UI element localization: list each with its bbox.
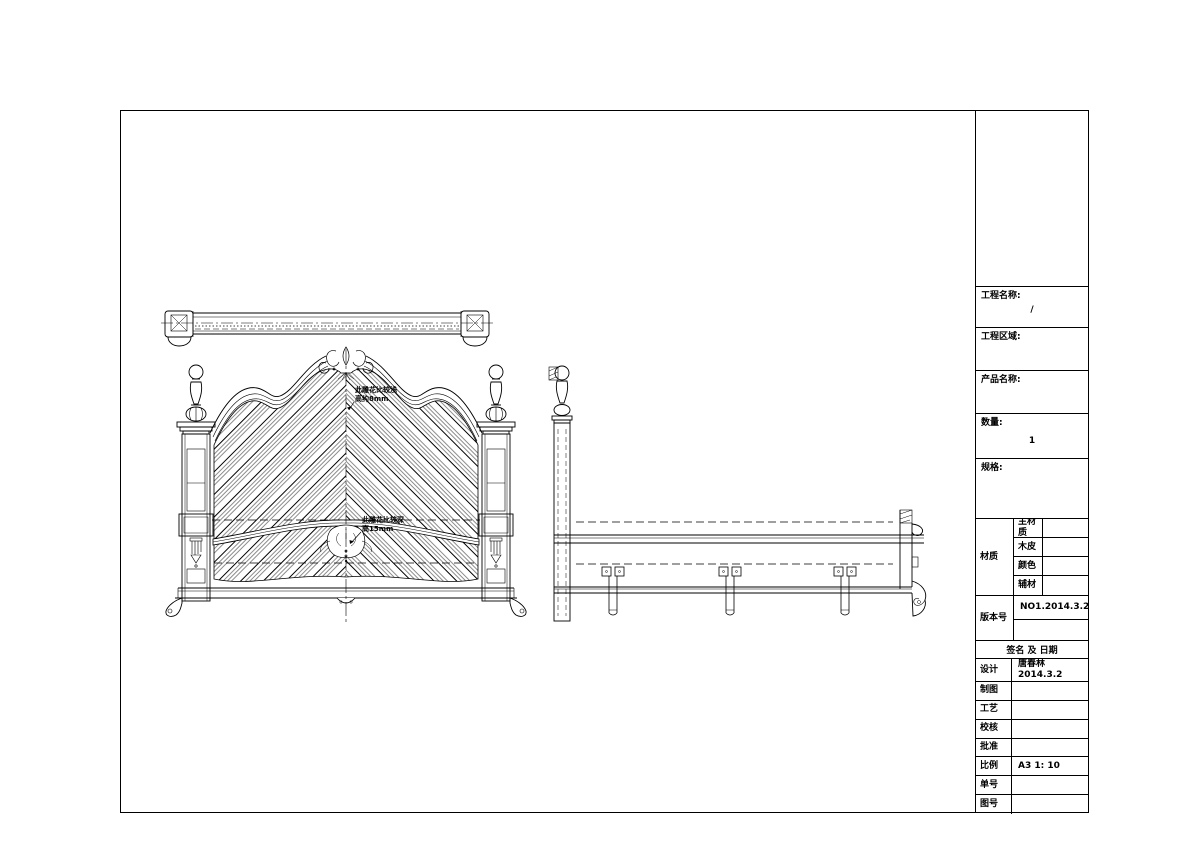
support-leg-1 — [602, 567, 624, 615]
sign-row-label: 图号 — [976, 795, 1012, 814]
material-row-value — [1043, 576, 1088, 595]
sign-row-label: 单号 — [976, 776, 1012, 794]
project-name-cell: 工程名称: / — [976, 287, 1088, 328]
sign-row-scale: 比例 A3 1: 10 — [976, 757, 1088, 776]
sign-row-check: 校核 — [976, 720, 1088, 739]
sign-row-order-no: 单号 — [976, 776, 1088, 795]
right-post — [477, 365, 526, 616]
spec-cell: 规格: — [976, 459, 1088, 519]
side-footboard-post — [900, 510, 926, 616]
headboard-front-view: 此雕花比较浅 高约8mm 此雕花比较深 高15mm — [166, 347, 526, 623]
signature-header: 签名 及 日期 — [976, 641, 1088, 659]
annotation-upper-line2: 高约8mm — [355, 394, 388, 403]
version-label: 版本号 — [976, 596, 1014, 640]
headboard-top-view — [161, 311, 493, 346]
project-name-label: 工程名称: — [981, 291, 1021, 302]
sheet-border-frame: 此雕花比较浅 高约8mm 此雕花比较深 高15mm — [120, 110, 1089, 813]
cad-drawing: 此雕花比较浅 高约8mm 此雕花比较深 高15mm — [121, 111, 977, 812]
sign-row-value — [1012, 795, 1088, 814]
bed-side-view — [549, 366, 926, 621]
sign-row-value — [1012, 682, 1088, 700]
sign-row-value — [1012, 720, 1088, 738]
logo-cell — [976, 111, 1088, 287]
signature-rows: 设计 唐春林 2014.3.2 制图 工艺 校核 — [976, 659, 1088, 814]
version-value: NO1.2014.3.2 — [1014, 596, 1088, 620]
material-row-label: 木皮 — [1014, 538, 1043, 557]
left-post — [166, 365, 215, 616]
material-row-value — [1043, 557, 1088, 576]
sign-row-label: 校核 — [976, 720, 1012, 738]
drawing-sheet: 此雕花比较浅 高约8mm 此雕花比较深 高15mm — [0, 0, 1191, 842]
project-area-cell: 工程区域: — [976, 328, 1088, 371]
spec-label: 规格: — [981, 463, 1003, 474]
sign-row-value — [1012, 701, 1088, 719]
annotation-lower-line2: 高15mm — [362, 524, 393, 533]
material-row-value — [1043, 519, 1088, 538]
title-block: 工程名称: / 工程区域: 产品名称: 数量: 1 规格: — [975, 111, 1088, 812]
side-headboard-post — [549, 366, 572, 621]
product-name-cell: 产品名称: — [976, 371, 1088, 414]
material-row-label: 主材质 — [1014, 519, 1043, 538]
project-name-value: / — [976, 305, 1088, 315]
material-row-label: 颜色 — [1014, 557, 1043, 576]
product-name-label: 产品名称: — [981, 375, 1021, 386]
side-rail-lower — [554, 587, 912, 593]
sign-row-drawing-no: 图号 — [976, 795, 1088, 814]
annotation-lower-line1: 此雕花比较深 — [362, 515, 404, 524]
sign-row-value: A3 1: 10 — [1012, 757, 1088, 775]
support-leg-3 — [834, 567, 856, 615]
quantity-label: 数量: — [981, 418, 1003, 429]
sign-row-label: 批准 — [976, 739, 1012, 757]
material-section: 材质 主材质 木皮 颜色 辅材 — [976, 519, 1088, 596]
sign-row-value — [1012, 739, 1088, 757]
side-rail-upper — [554, 535, 924, 543]
sign-row-label: 工艺 — [976, 701, 1012, 719]
version-section: 版本号 NO1.2014.3.2 — [976, 596, 1088, 641]
sign-row-label: 比例 — [976, 757, 1012, 775]
quantity-cell: 数量: 1 — [976, 414, 1088, 459]
support-leg-2 — [719, 567, 741, 615]
material-label: 材质 — [976, 519, 1014, 595]
quantity-value: 1 — [976, 436, 1088, 446]
sign-row-value — [1012, 776, 1088, 794]
sign-row-label: 设计 — [976, 659, 1012, 681]
project-area-label: 工程区域: — [981, 332, 1021, 343]
material-row-value — [1043, 538, 1088, 557]
sign-row-craft: 工艺 — [976, 701, 1088, 720]
sign-row-approve: 批准 — [976, 739, 1088, 758]
material-row-label: 辅材 — [1014, 576, 1043, 595]
sign-row-label: 制图 — [976, 682, 1012, 700]
sign-row-value: 唐春林 2014.3.2 — [1012, 659, 1088, 681]
sign-row-design: 设计 唐春林 2014.3.2 — [976, 659, 1088, 682]
annotation-upper-line1: 此雕花比较浅 — [355, 385, 397, 394]
version-extra-cell — [1014, 620, 1088, 640]
sign-row-draft: 制图 — [976, 682, 1088, 701]
